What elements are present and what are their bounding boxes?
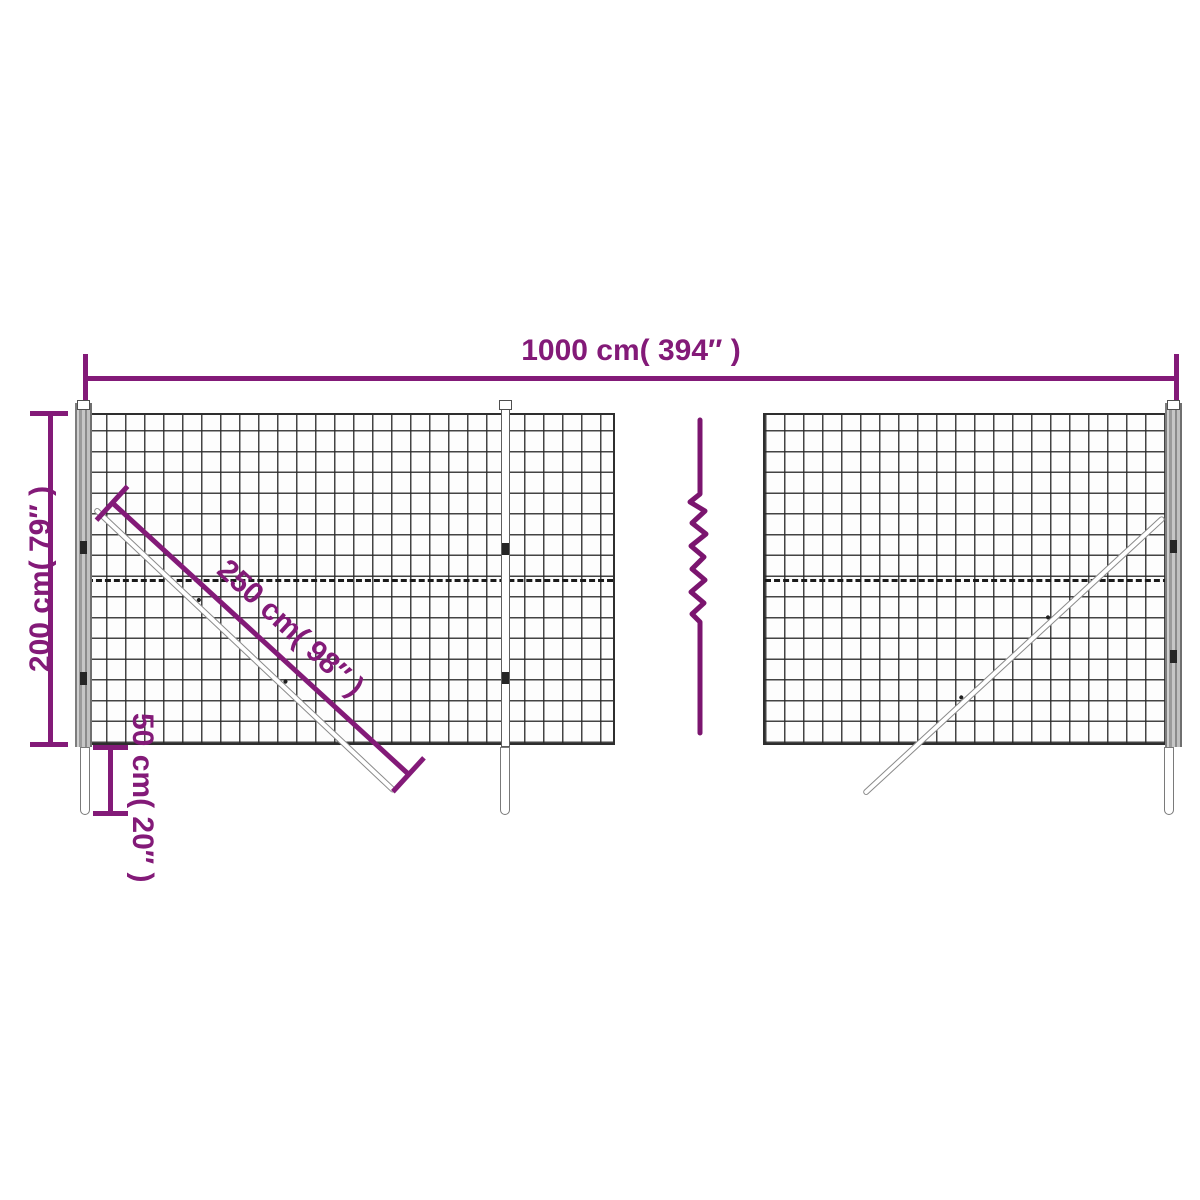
- post-middle: [501, 403, 510, 747]
- post-left-cap: [77, 400, 90, 410]
- width-dimension-line: [85, 376, 1177, 381]
- post-middle-clip-lower: [502, 672, 509, 684]
- stake-dimension-label: 50 cm( 20″ ): [125, 713, 159, 882]
- post-middle-clip-upper: [502, 543, 509, 555]
- stake-dimension-tick-bottom: [93, 811, 128, 816]
- ground-stake-middle: [500, 747, 510, 815]
- post-left-clip-upper: [80, 541, 87, 554]
- post-right: [1165, 403, 1182, 747]
- fence-dimension-diagram: 1000 cm( 394″ ) 200 cm( 79″ ) 250 cm( 98…: [0, 0, 1200, 1200]
- stake-dimension-line: [108, 748, 113, 814]
- post-right-cap: [1167, 400, 1180, 410]
- post-right-clip-upper: [1170, 540, 1177, 553]
- ground-stake-left: [80, 747, 90, 815]
- width-dimension-label: 1000 cm( 394″ ): [85, 334, 1177, 368]
- stake-dimension-tick-top: [93, 745, 128, 750]
- post-left: [75, 403, 92, 747]
- post-middle-cap: [499, 400, 512, 410]
- break-line: [678, 414, 722, 740]
- height-dimension-label: 200 cm( 79″ ): [24, 413, 58, 745]
- mesh-middle-wire-right: [765, 579, 1178, 582]
- ground-stake-right: [1164, 747, 1174, 815]
- post-left-clip-lower: [80, 672, 87, 685]
- post-right-clip-lower: [1170, 650, 1177, 663]
